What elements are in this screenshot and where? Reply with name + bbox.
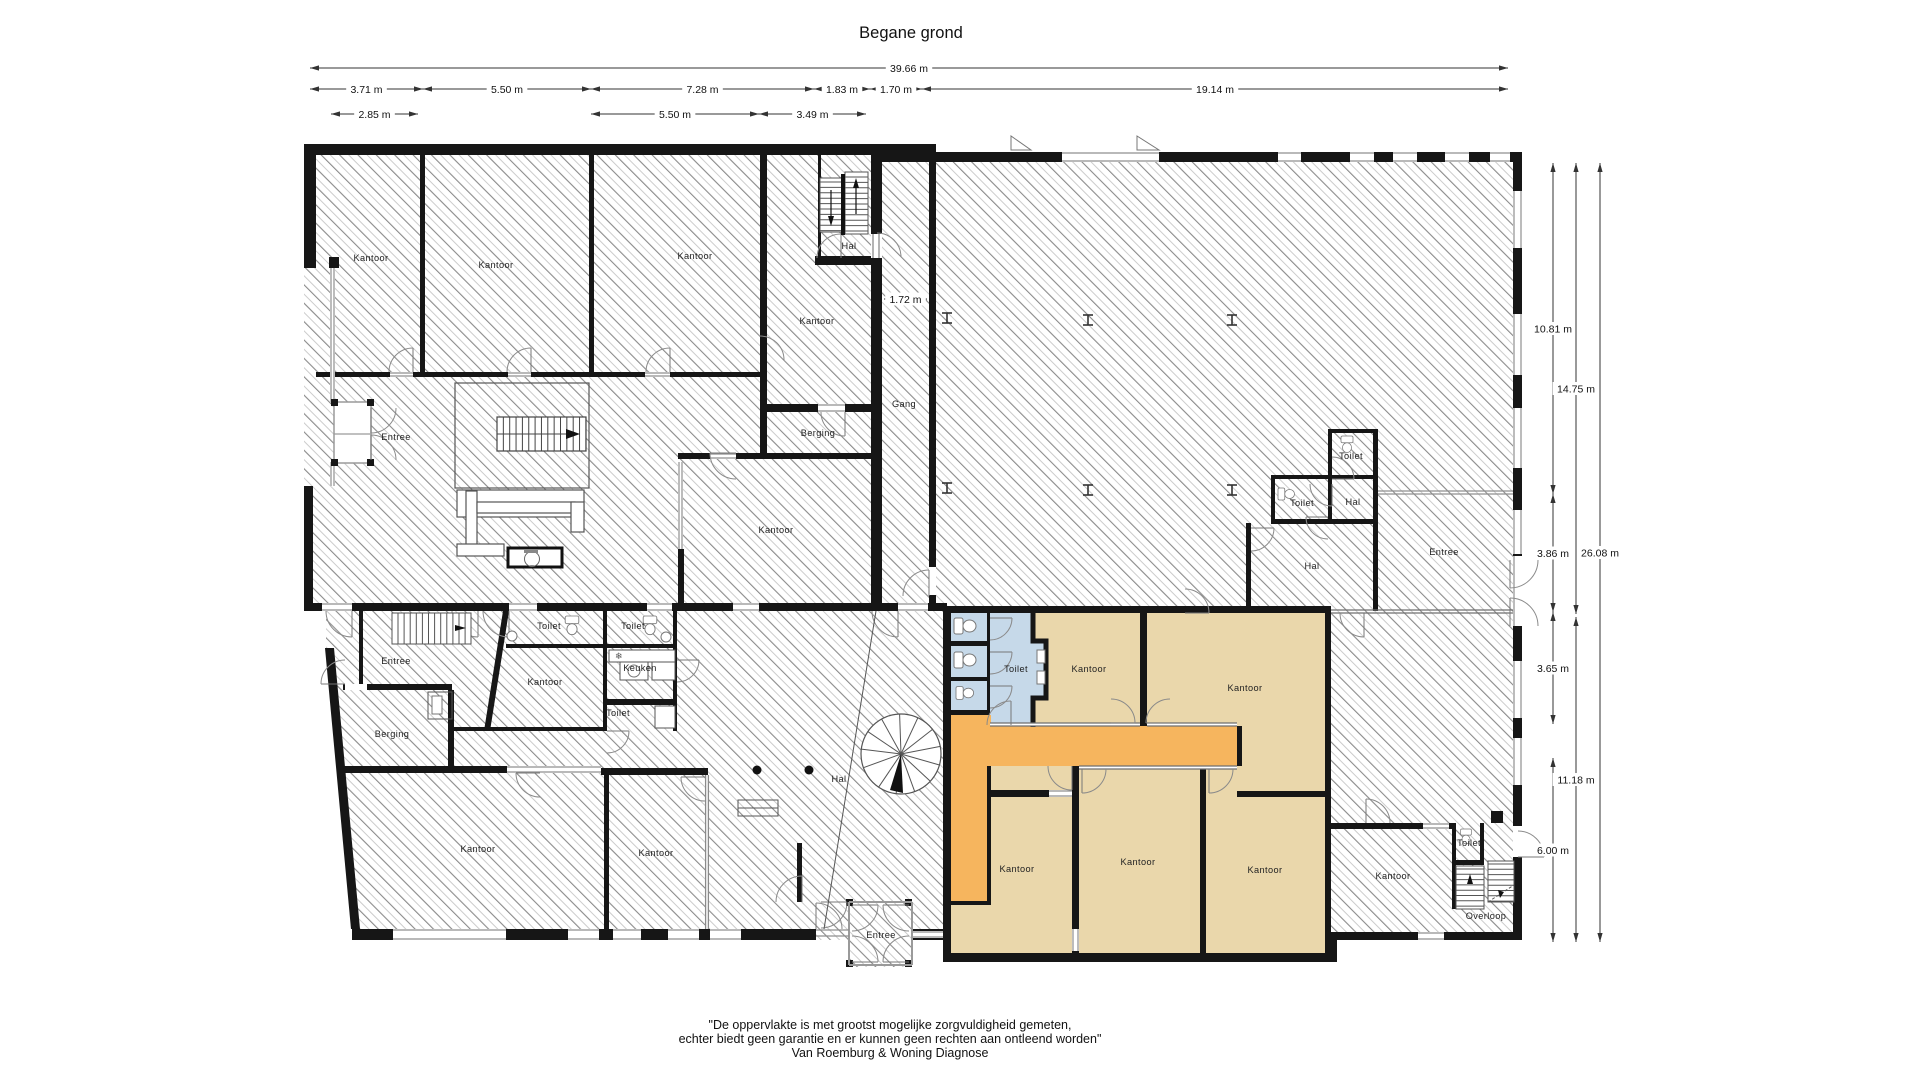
svg-text:Toilet: Toilet <box>1290 498 1314 508</box>
svg-text:Toilet: Toilet <box>537 621 561 631</box>
svg-text:3.65 m: 3.65 m <box>1537 663 1569 675</box>
svg-text:Berging: Berging <box>375 729 409 739</box>
svg-text:39.66 m: 39.66 m <box>890 63 928 75</box>
svg-text:Keuken: Keuken <box>623 663 657 673</box>
svg-text:Kantoor: Kantoor <box>800 316 835 326</box>
svg-text:11.18 m: 11.18 m <box>1557 774 1594 786</box>
svg-text:Berging: Berging <box>801 428 835 438</box>
svg-text:Entree: Entree <box>866 930 895 940</box>
svg-text:Kantoor: Kantoor <box>759 525 794 535</box>
svg-text:Hal: Hal <box>1346 497 1361 507</box>
svg-text:Kantoor: Kantoor <box>1228 683 1263 693</box>
svg-text:❄: ❄ <box>615 651 623 661</box>
svg-text:6.00 m: 6.00 m <box>1537 845 1569 857</box>
svg-text:5.50 m: 5.50 m <box>491 84 523 96</box>
svg-text:Kantoor: Kantoor <box>1121 857 1156 867</box>
svg-text:Hal: Hal <box>842 241 857 251</box>
svg-text:echter biedt geen garantie en: echter biedt geen garantie en er kunnen … <box>679 1032 1102 1046</box>
svg-text:Hal: Hal <box>1305 561 1320 571</box>
svg-text:7.28 m: 7.28 m <box>686 84 718 96</box>
svg-text:Begane grond: Begane grond <box>859 24 963 42</box>
svg-text:Kantoor: Kantoor <box>1000 864 1035 874</box>
svg-text:26.08 m: 26.08 m <box>1581 547 1619 559</box>
svg-text:Overloop: Overloop <box>1466 911 1506 921</box>
svg-text:Kantoor: Kantoor <box>678 251 713 261</box>
svg-text:1.83 m: 1.83 m <box>826 84 858 96</box>
svg-text:Kantoor: Kantoor <box>461 844 496 854</box>
svg-text:Kantoor: Kantoor <box>354 253 389 263</box>
svg-text:Entree: Entree <box>1429 547 1458 557</box>
svg-text:Kantoor: Kantoor <box>639 848 674 858</box>
svg-text:3.71 m: 3.71 m <box>350 84 382 96</box>
svg-text:14.75 m: 14.75 m <box>1557 383 1595 395</box>
svg-text:1.72 m: 1.72 m <box>889 294 921 306</box>
svg-text:19.14 m: 19.14 m <box>1196 84 1234 96</box>
svg-text:Toilet: Toilet <box>621 621 645 631</box>
svg-text:Toilet: Toilet <box>1004 664 1028 674</box>
svg-text:3.86 m: 3.86 m <box>1537 548 1569 560</box>
svg-text:Kantoor: Kantoor <box>528 677 563 687</box>
svg-text:Kantoor: Kantoor <box>1248 865 1283 875</box>
svg-text:Kantoor: Kantoor <box>479 260 514 270</box>
svg-text:Van Roemburg & Woning Diagnose: Van Roemburg & Woning Diagnose <box>792 1046 989 1060</box>
svg-text:3.49 m: 3.49 m <box>796 109 828 121</box>
svg-text:Toilet: Toilet <box>1339 451 1363 461</box>
svg-text:10.81 m: 10.81 m <box>1534 323 1572 335</box>
svg-text:Gang: Gang <box>892 399 916 409</box>
svg-text:Toilet: Toilet <box>1457 838 1481 848</box>
svg-text:Toilet: Toilet <box>606 708 630 718</box>
svg-text:Entree: Entree <box>381 656 410 666</box>
svg-text:2.85 m: 2.85 m <box>358 109 390 121</box>
svg-text:Entree: Entree <box>381 432 410 442</box>
svg-text:Hal: Hal <box>832 774 847 784</box>
svg-text:Kantoor: Kantoor <box>1072 664 1107 674</box>
svg-text:Kantoor: Kantoor <box>1376 871 1411 881</box>
svg-text:5.50 m: 5.50 m <box>659 109 691 121</box>
svg-text:"De oppervlakte is met grootst: "De oppervlakte is met grootst mogelijke… <box>709 1018 1072 1032</box>
svg-text:1.70 m: 1.70 m <box>880 84 912 96</box>
